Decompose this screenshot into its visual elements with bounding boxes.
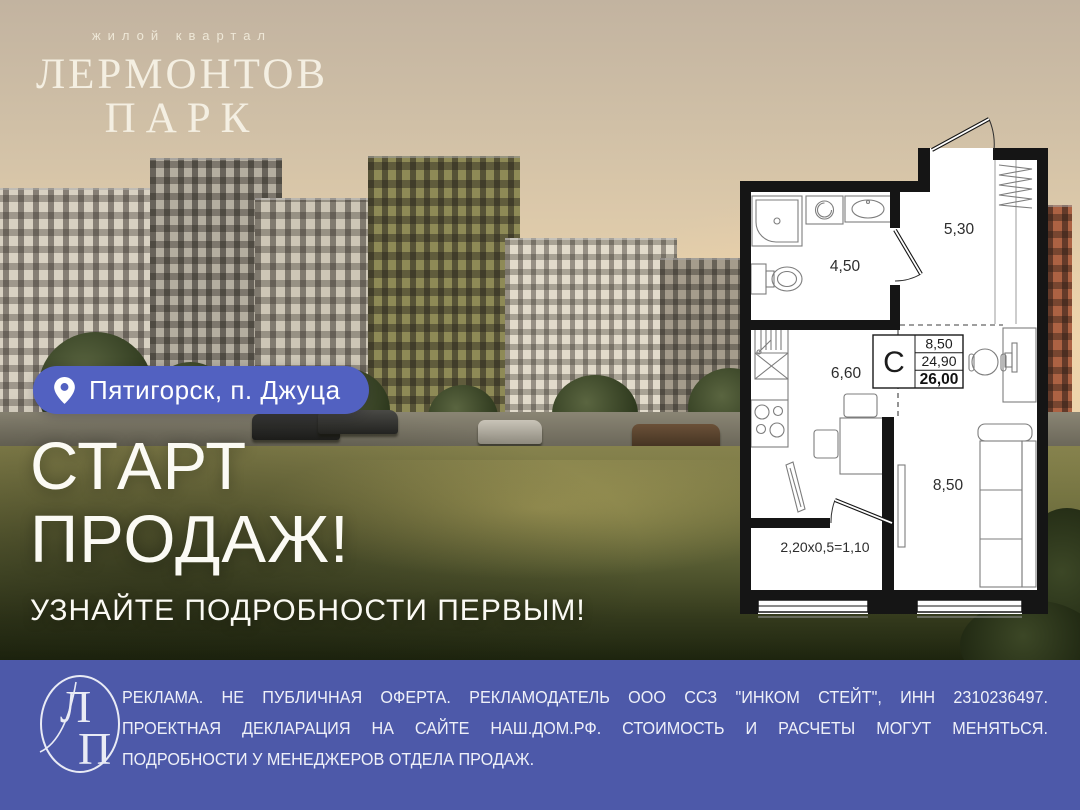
- stamp-area: 24,90: [921, 353, 956, 369]
- room-label-living: 8,50: [933, 477, 964, 494]
- brand-tagline: жилой квартал: [32, 28, 332, 43]
- monogram-letter-p: П: [78, 723, 111, 774]
- headline-line1: СТАРТ: [30, 430, 586, 503]
- area-stamp: С 8,50 24,90 26,00: [873, 335, 963, 388]
- ad-banner: жилой квартал ЛЕРМОНТОВ ПАРК Пятигорск, …: [0, 0, 1080, 810]
- stamp-living-area: 8,50: [925, 336, 952, 352]
- disclaimer-line: РЕКЛАМА. НЕ ПУБЛИЧНАЯ ОФЕРТА. РЕКЛАМОДАТ…: [122, 682, 1048, 713]
- balcony-formula-label: 2,20х0,5=1,10: [780, 539, 869, 555]
- room-label-hallway: 5,30: [944, 221, 975, 238]
- entrance-door: [932, 119, 994, 150]
- stamp-total-area: 26,00: [920, 371, 959, 388]
- footer-disclaimer-bar: Л П РЕКЛАМА. НЕ ПУБЛИЧНАЯ ОФЕРТА. РЕКЛАМ…: [0, 660, 1080, 810]
- location-badge: Пятигорск, п. Джуца: [33, 366, 369, 414]
- floor-plan: С 8,50 24,90 26,00 4,50 5,30 6,60 8,50 2…: [740, 112, 1048, 640]
- headline: СТАРТ ПРОДАЖ! УЗНАЙТЕ ПОДРОБНОСТИ ПЕРВЫМ…: [30, 430, 586, 628]
- location-badge-label: Пятигорск, п. Джуца: [89, 375, 341, 406]
- headline-line2: ПРОДАЖ!: [30, 503, 586, 576]
- disclaimer-line: ПРОЕКТНАЯ ДЕКЛАРАЦИЯ НА САЙТЕ НАШ.ДОМ.РФ…: [122, 713, 1048, 744]
- brand-logo: жилой квартал ЛЕРМОНТОВ ПАРК: [32, 28, 332, 141]
- brand-title-line2: ПАРК: [32, 97, 332, 141]
- headline-subline: УЗНАЙТЕ ПОДРОБНОСТИ ПЕРВЫМ!: [30, 594, 586, 628]
- location-pin-icon: [53, 376, 76, 405]
- disclaimer-text: РЕКЛАМА. НЕ ПУБЛИЧНАЯ ОФЕРТА. РЕКЛАМОДАТ…: [122, 682, 1048, 775]
- apartment-type-label: С: [883, 346, 905, 379]
- room-label-kitchen: 6,60: [831, 365, 862, 382]
- room-label-bathroom: 4,50: [830, 258, 861, 275]
- monogram-logo: Л П: [36, 672, 122, 776]
- brand-title-line1: ЛЕРМОНТОВ: [32, 53, 332, 97]
- disclaimer-line: ПОДРОБНОСТИ У МЕНЕДЖЕРОВ ОТДЕЛА ПРОДАЖ.: [122, 744, 1048, 775]
